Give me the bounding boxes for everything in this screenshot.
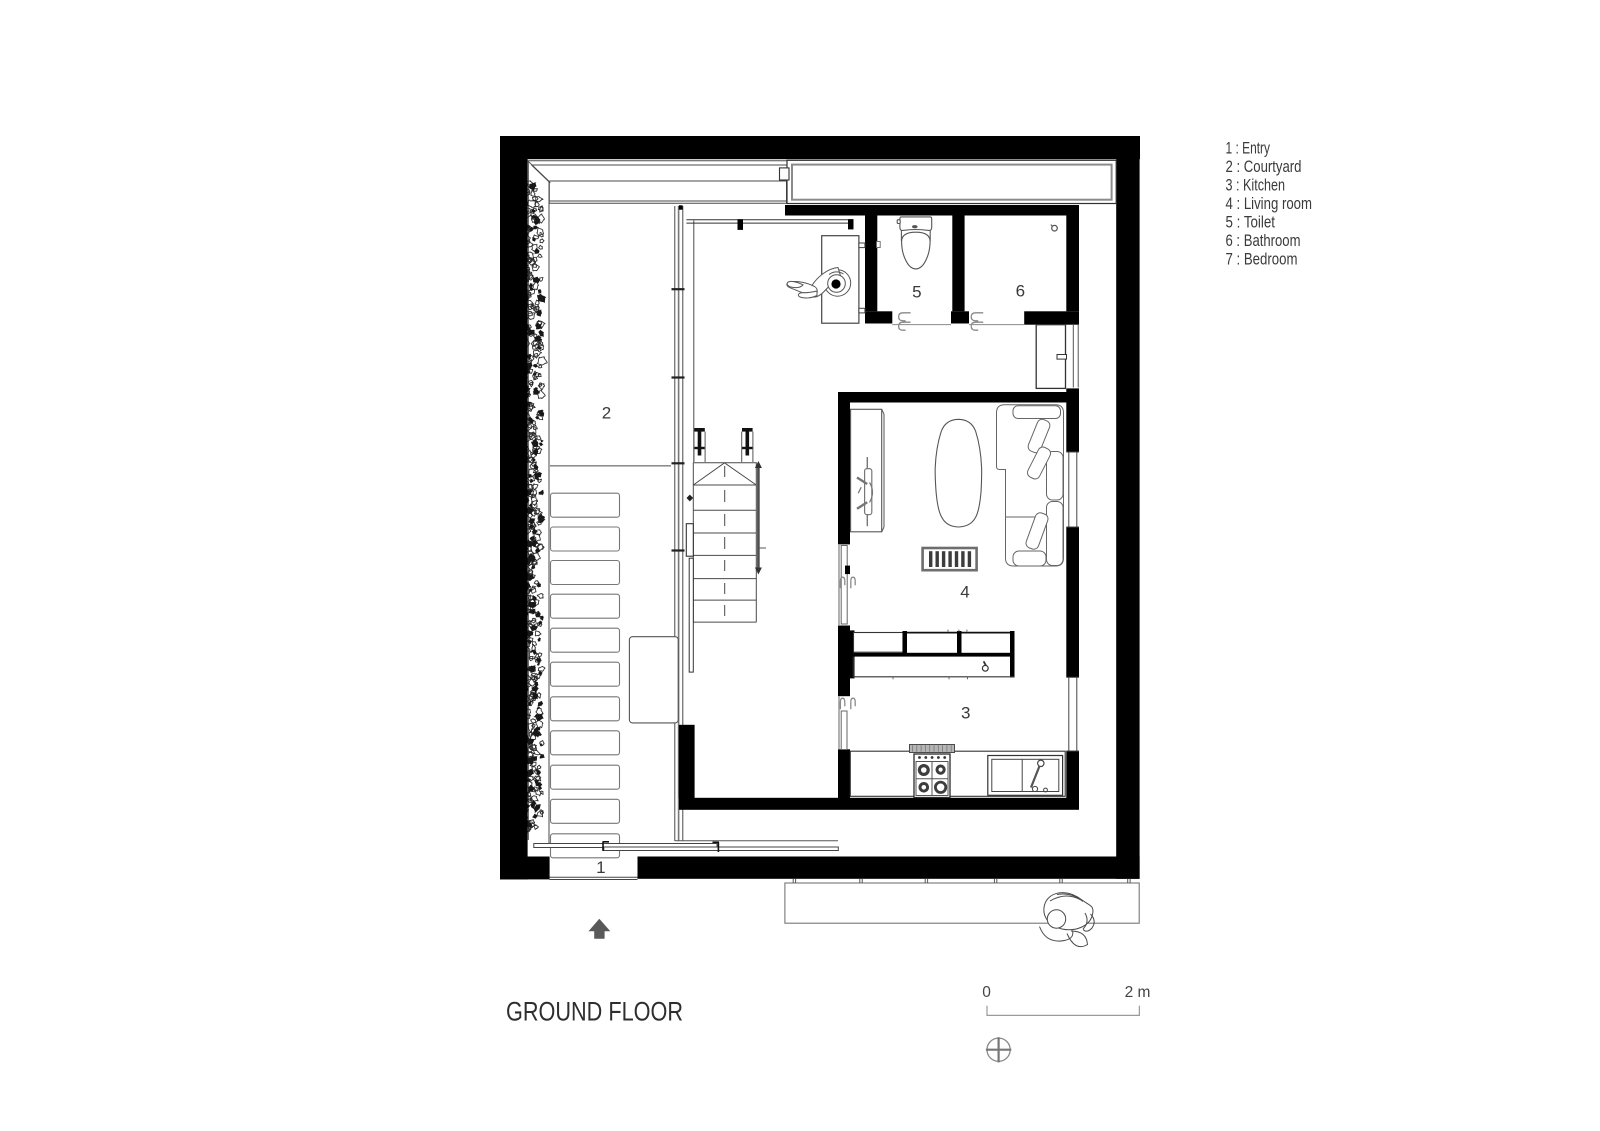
svg-text:0: 0: [982, 984, 991, 1001]
svg-text:1 : Entry: 1 : Entry: [1226, 139, 1271, 157]
svg-text:GROUND FLOOR: GROUND FLOOR: [506, 997, 683, 1027]
svg-text:3 : Kitchen: 3 : Kitchen: [1226, 176, 1286, 194]
svg-text:5 : Toilet: 5 : Toilet: [1226, 214, 1276, 232]
svg-text:2 : Courtyard: 2 : Courtyard: [1226, 158, 1302, 176]
svg-text:6 : Bathroom: 6 : Bathroom: [1226, 232, 1301, 250]
svg-text:4 : Living room: 4 : Living room: [1226, 195, 1313, 213]
svg-text:4: 4: [960, 583, 969, 602]
svg-text:3: 3: [961, 704, 970, 723]
svg-text:5: 5: [912, 283, 921, 302]
svg-text:1: 1: [596, 858, 605, 877]
svg-text:2 m: 2 m: [1125, 984, 1151, 1001]
svg-text:6: 6: [1016, 282, 1025, 301]
svg-text:2: 2: [602, 404, 611, 423]
svg-text:7 : Bedroom: 7 : Bedroom: [1226, 251, 1298, 269]
